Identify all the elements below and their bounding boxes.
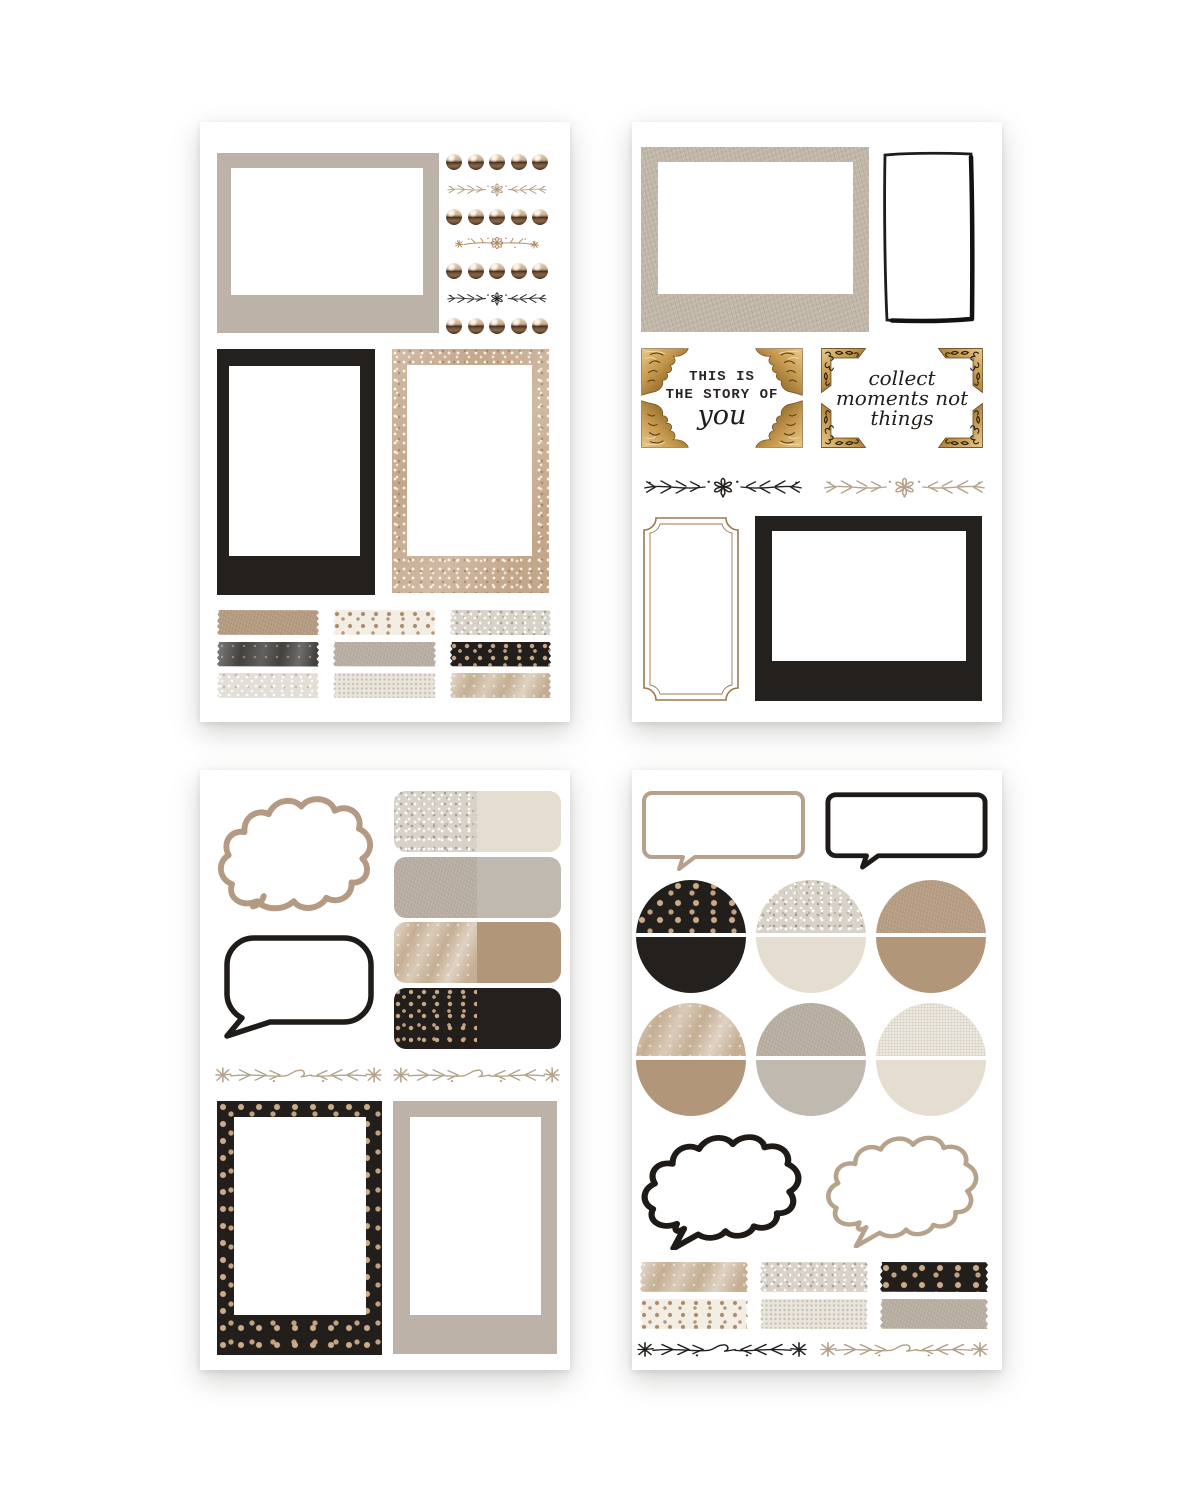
copper-brad-icon (489, 263, 505, 279)
photo-frame-leather (641, 147, 869, 332)
brad-row (446, 154, 548, 170)
two-tone-label (394, 857, 561, 918)
vine-divider-icon (820, 1337, 988, 1362)
copper-brad-icon (489, 318, 505, 334)
quote-line: moments not (836, 388, 968, 408)
half-circle-sticker-grid (636, 880, 986, 1116)
washi-tape (760, 1299, 868, 1329)
washi-tape (450, 610, 551, 635)
circle-top-half (636, 1003, 746, 1060)
cloud-bubble-tan-icon (822, 1128, 992, 1248)
half-circle-sticker (636, 1003, 746, 1116)
copper-brad-icon (446, 209, 462, 225)
washi-tape (217, 673, 319, 698)
vine-divider-icon (446, 181, 548, 198)
quote-text: THIS IS THE STORY OF you (666, 347, 778, 449)
copper-brad-icon (511, 318, 527, 334)
circle-bottom-half (636, 937, 746, 994)
circle-top-half (876, 1003, 986, 1060)
photo-frame-window (231, 168, 423, 295)
quote-line: collect (868, 368, 935, 388)
washi-tape-grid (640, 1262, 988, 1329)
quote-line: things (870, 408, 933, 428)
brad-row (446, 318, 548, 334)
hand-drawn-frame-icon (880, 149, 977, 327)
two-tone-label (394, 988, 561, 1049)
polaroid-frame-greige (393, 1101, 557, 1354)
vine-divider-icon (642, 474, 804, 500)
vine-divider-icon (446, 290, 548, 307)
copper-brad-icon (489, 154, 505, 170)
copper-brad-icon (468, 263, 484, 279)
sticker-sheets-canvas: THIS IS THE STORY OF you collect moments… (0, 0, 1200, 1500)
cloud-bubble-tan-icon (217, 792, 384, 920)
copper-brad-icon (468, 209, 484, 225)
washi-tape (333, 610, 436, 635)
hand-drawn-frame (880, 149, 977, 327)
washi-tape (217, 610, 319, 635)
copper-brad-icon (468, 318, 484, 334)
vine-divider-icon (393, 1062, 560, 1088)
cloud-bubble-black-icon (638, 1127, 815, 1250)
polaroid-window (229, 366, 360, 556)
half-circle-sticker (876, 1003, 986, 1116)
vine-divider-icon (637, 1337, 807, 1362)
washi-tape (880, 1262, 988, 1292)
circle-bottom-half (876, 937, 986, 994)
polaroid-window (410, 1117, 541, 1315)
quote-line: you (698, 403, 747, 429)
sticker-sheet-4 (632, 770, 1002, 1370)
circle-bottom-half (756, 937, 866, 994)
circle-bottom-half (636, 1060, 746, 1117)
quote-sticker-story: THIS IS THE STORY OF you (640, 347, 804, 449)
quote-line: THIS IS (689, 368, 755, 386)
sticker-sheet-3 (200, 770, 570, 1370)
ticket-frame (642, 516, 740, 702)
washi-tape (333, 642, 436, 667)
copper-brad-icon (511, 263, 527, 279)
washi-tape (640, 1262, 748, 1292)
rect-bubble-tan-icon (639, 788, 808, 872)
copper-brad-icon (532, 154, 548, 170)
floral-spray-icon (446, 235, 548, 252)
photo-frame-window (407, 365, 532, 556)
label-left-half (394, 791, 477, 852)
two-tone-label (394, 922, 561, 983)
label-left-half (394, 988, 477, 1049)
photo-frame-glitter (392, 349, 549, 593)
circle-top-half (756, 880, 866, 937)
label-left-half (394, 857, 477, 918)
copper-brad-icon (489, 209, 505, 225)
label-right-half (477, 922, 561, 983)
washi-tape (333, 673, 436, 698)
washi-tape (450, 673, 551, 698)
speech-bubble-black-icon (218, 932, 382, 1040)
washi-tape-grid (217, 610, 551, 698)
half-circle-sticker (756, 1003, 866, 1116)
washi-tape (217, 642, 319, 667)
label-sticker-stack (394, 791, 561, 1049)
sticker-sheet-1 (200, 122, 570, 722)
brad-row (446, 209, 548, 225)
brad-row (446, 263, 548, 279)
vine-divider-icon (822, 474, 987, 500)
circle-top-half (876, 880, 986, 937)
circle-top-half (636, 880, 746, 937)
washi-tape (760, 1262, 868, 1292)
polaroid-window (234, 1117, 366, 1315)
polaroid-frame-black (217, 349, 375, 595)
photo-frame-black (755, 516, 982, 701)
copper-brad-icon (511, 154, 527, 170)
copper-brad-icon (468, 154, 484, 170)
washi-tape (450, 642, 551, 667)
circle-bottom-half (756, 1060, 866, 1117)
photo-frame-greige (217, 153, 439, 333)
quote-sticker-collect: collect moments not things (820, 347, 984, 449)
copper-brad-icon (532, 209, 548, 225)
photo-frame-window (658, 162, 853, 294)
copper-brad-icon (532, 263, 548, 279)
copper-brad-icon (446, 154, 462, 170)
label-right-half (477, 988, 561, 1049)
washi-tape (880, 1299, 988, 1329)
label-right-half (477, 857, 561, 918)
photo-frame-window (772, 531, 966, 661)
half-circle-sticker (636, 880, 746, 993)
polaroid-frame-dotted (217, 1101, 382, 1355)
copper-brad-icon (446, 318, 462, 334)
vine-divider-icon (215, 1062, 382, 1088)
two-tone-label (394, 791, 561, 852)
circle-bottom-half (876, 1060, 986, 1117)
washi-tape (640, 1299, 748, 1329)
sticker-sheet-2: THIS IS THE STORY OF you collect moments… (632, 122, 1002, 722)
rect-bubble-black-icon (823, 790, 990, 870)
copper-brad-icon (446, 263, 462, 279)
brads-and-flourishes (446, 154, 548, 334)
copper-brad-icon (532, 318, 548, 334)
label-right-half (477, 791, 561, 852)
label-left-half (394, 922, 477, 983)
circle-top-half (756, 1003, 866, 1060)
ticket-frame-icon (642, 516, 740, 702)
quote-text: collect moments not things (846, 347, 958, 449)
half-circle-sticker (756, 880, 866, 993)
copper-brad-icon (511, 209, 527, 225)
half-circle-sticker (876, 880, 986, 993)
